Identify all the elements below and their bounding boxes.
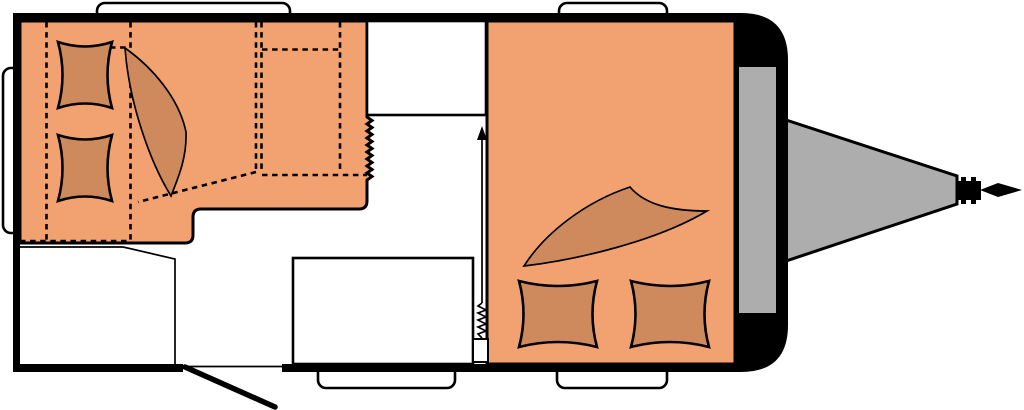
drawbar-assembly xyxy=(780,118,1022,263)
drawbar-aframe xyxy=(780,118,957,263)
seat-cushion-icon xyxy=(58,42,112,108)
kitchen-unit xyxy=(293,258,473,364)
front-gas-locker xyxy=(739,67,776,313)
bed-pillow-icon xyxy=(631,281,709,347)
door-leaf-icon xyxy=(185,367,275,407)
hitch-handle-icon xyxy=(980,183,1022,197)
entry-door xyxy=(183,363,282,407)
seat-cushion-icon xyxy=(58,135,112,201)
partition-end-cabinet xyxy=(473,339,488,362)
bed-pillow-icon xyxy=(519,281,597,347)
caravan-floorplan xyxy=(0,0,1024,410)
hitch-coupling-icon xyxy=(956,177,1022,204)
washroom xyxy=(367,21,486,115)
